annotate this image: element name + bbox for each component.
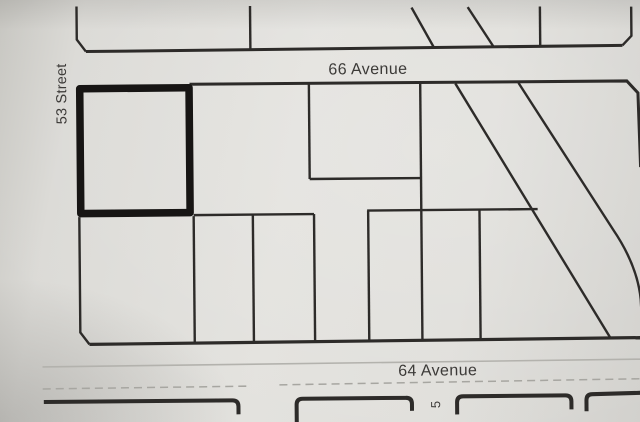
south-curb-segment-2: [297, 398, 413, 422]
lot-line-e: [420, 83, 422, 342]
64-avenue-faint-line: [42, 359, 640, 367]
north-lot-diagonal-1: [412, 7, 434, 47]
north-side-lot-lines: [76, 2, 631, 52]
53-street-label: 53 Street: [54, 63, 71, 124]
66-avenue-south-edge: [190, 80, 640, 171]
south-curb-segment-3: [457, 395, 571, 414]
53-street-north-curb: [76, 6, 85, 51]
lot-line-f: [368, 211, 369, 342]
north-lot-diagonal-2: [468, 7, 493, 46]
highlighted-parcel: [80, 88, 190, 214]
66-avenue-label: 66 Avenue: [328, 60, 407, 79]
south-curb-segment-1: [44, 400, 239, 416]
plat-map-drawing: 66 Avenue 64 Avenue 53 Street 5: [0, 0, 640, 422]
plat-map-photo: 66 Avenue 64 Avenue 53 Street 5: [0, 0, 640, 422]
64-avenue-road: [42, 338, 640, 422]
53-street-east-curb-lower: [79, 217, 89, 344]
lot-line-g: [479, 210, 480, 341]
north-east-corner: [622, 7, 631, 46]
lot-split-mid: [310, 178, 421, 179]
64-avenue-north-edge: [89, 338, 640, 345]
64-avenue-label: 64 Avenue: [398, 361, 477, 380]
street-labels: 66 Avenue 64 Avenue 53 Street 5: [54, 59, 478, 411]
64-avenue-centerline-left: [43, 386, 250, 389]
south-curb-segment-4: [586, 393, 640, 412]
bottom-street-partial-label: 5: [428, 401, 443, 408]
lot-line-a: [194, 216, 195, 343]
lot-line-c: [314, 214, 315, 342]
lot-line-b: [253, 215, 254, 343]
lot-line-d: [309, 84, 310, 179]
66-avenue-north-edge: [86, 45, 623, 51]
lot-split-right: [367, 209, 538, 210]
64-avenue-centerline-right: [279, 379, 640, 385]
